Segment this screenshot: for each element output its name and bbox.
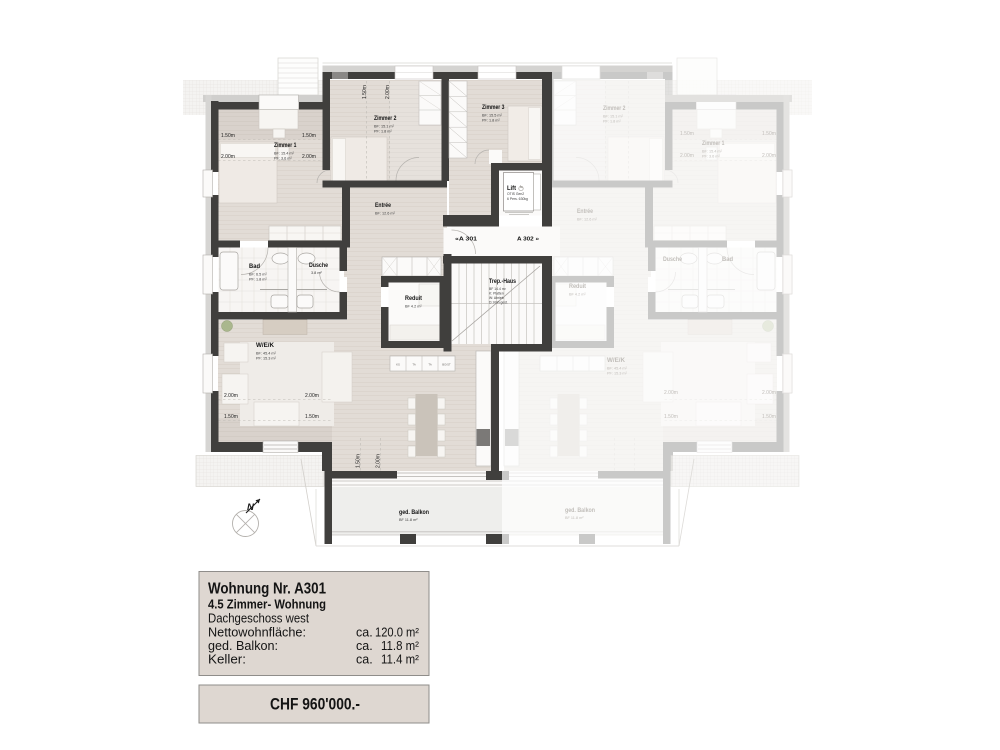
svg-text:4.5 Zimmer- Wohnung: 4.5 Zimmer- Wohnung bbox=[208, 597, 326, 612]
svg-text:PF: 1.8 m²: PF: 1.8 m² bbox=[603, 120, 621, 124]
svg-text:2.00m: 2.00m bbox=[302, 154, 316, 160]
svg-text:2.00m: 2.00m bbox=[305, 393, 319, 399]
svg-text:ged. Balkon:: ged. Balkon: bbox=[208, 639, 278, 653]
svg-text:1.50m: 1.50m bbox=[362, 85, 368, 99]
svg-text:Entrée: Entrée bbox=[577, 208, 593, 215]
svg-text:PF: 15.3 m²: PF: 15.3 m² bbox=[607, 372, 628, 376]
svg-text:BF: 15.4 m²: BF: 15.4 m² bbox=[274, 152, 295, 156]
svg-text:Bad: Bad bbox=[249, 263, 260, 270]
svg-text:W/E/K: W/E/K bbox=[607, 357, 625, 364]
svg-text:3.8 m²: 3.8 m² bbox=[311, 271, 322, 275]
svg-text:Zimmer 1: Zimmer 1 bbox=[702, 140, 725, 147]
svg-text:BO/ST: BO/ST bbox=[442, 363, 451, 367]
svg-text:1.50m: 1.50m bbox=[305, 414, 319, 420]
svg-text:2.00m: 2.00m bbox=[221, 154, 235, 160]
svg-text:D: Roh gest.: D: Roh gest. bbox=[489, 301, 508, 305]
svg-text:Zimmer 1: Zimmer 1 bbox=[274, 142, 297, 149]
svg-text:ca.: ca. bbox=[356, 639, 373, 653]
svg-text:Dusche: Dusche bbox=[309, 262, 328, 269]
svg-text:1.50m: 1.50m bbox=[762, 131, 776, 137]
svg-text:6 Pers. 630kg: 6 Pers. 630kg bbox=[507, 197, 528, 201]
svg-text:TA: TA bbox=[428, 363, 432, 367]
svg-text:Keller:: Keller: bbox=[208, 653, 246, 667]
svg-text:BF 4.2 m²: BF 4.2 m² bbox=[405, 305, 422, 309]
svg-text:2.00m: 2.00m bbox=[680, 153, 694, 159]
svg-text:1.50m: 1.50m bbox=[356, 454, 362, 468]
svg-text:1.50m: 1.50m bbox=[221, 133, 235, 139]
svg-text:Nettowohnfläche:: Nettowohnfläche: bbox=[208, 626, 306, 640]
svg-text:BF 11.8 m²: BF 11.8 m² bbox=[399, 518, 418, 522]
svg-text:PF: 1.8 m²: PF: 1.8 m² bbox=[374, 130, 392, 134]
svg-text:ca.: ca. bbox=[356, 653, 373, 667]
svg-text:PF: 3.6 m²: PF: 3.6 m² bbox=[702, 155, 720, 159]
svg-text:Wohnung Nr. A301: Wohnung Nr. A301 bbox=[208, 581, 326, 598]
svg-text:PF: 15.3 m²: PF: 15.3 m² bbox=[256, 357, 277, 361]
svg-text:TA: TA bbox=[412, 363, 416, 367]
svg-text:2.00m: 2.00m bbox=[664, 390, 678, 396]
svg-text:Bad: Bad bbox=[722, 256, 733, 263]
svg-text:2.00m: 2.00m bbox=[762, 153, 776, 159]
svg-text:BF: 15.4 m²: BF: 15.4 m² bbox=[702, 150, 723, 154]
svg-text:W: Abrieb: W: Abrieb bbox=[489, 296, 504, 300]
svg-text:2.00m: 2.00m bbox=[224, 393, 238, 399]
svg-text:W/E/K: W/E/K bbox=[256, 342, 274, 349]
svg-text:1.50m: 1.50m bbox=[762, 414, 776, 420]
svg-text:BF: 12.6 m²: BF: 12.6 m² bbox=[375, 212, 396, 216]
svg-text:2.00m: 2.00m bbox=[762, 390, 776, 396]
svg-text:Dusche: Dusche bbox=[663, 256, 682, 263]
svg-text:BF: 15.1 m²: BF: 15.1 m² bbox=[603, 115, 624, 119]
svg-text:Reduit: Reduit bbox=[569, 283, 587, 290]
svg-text:«A 301: «A 301 bbox=[455, 237, 478, 243]
svg-text:A 302 »: A 302 » bbox=[517, 237, 539, 243]
svg-text:Lift: Lift bbox=[507, 185, 517, 192]
svg-text:BF: 15.5 m²: BF: 15.5 m² bbox=[482, 114, 503, 118]
svg-text:BF: 15.1 m²: BF: 15.1 m² bbox=[374, 125, 395, 129]
svg-text:KS: KS bbox=[396, 363, 400, 367]
svg-text:CHF 960'000.-: CHF 960'000.- bbox=[270, 696, 360, 714]
svg-text:BF 4.2 m²: BF 4.2 m² bbox=[569, 293, 586, 297]
svg-text:BF: 6.5 m²: BF: 6.5 m² bbox=[249, 273, 267, 277]
svg-text:Reduit: Reduit bbox=[405, 295, 423, 302]
svg-text:11.8 m²: 11.8 m² bbox=[381, 639, 419, 653]
svg-text:Zimmer 2: Zimmer 2 bbox=[374, 115, 397, 122]
svg-text:1.50m: 1.50m bbox=[302, 133, 316, 139]
svg-text:1.50m: 1.50m bbox=[224, 414, 238, 420]
svg-text:Zimmer 2: Zimmer 2 bbox=[603, 105, 626, 112]
svg-text:N: N bbox=[247, 502, 255, 513]
svg-text:BF: 12.6 m²: BF: 12.6 m² bbox=[577, 218, 598, 222]
svg-text:PF: 1.8 m²: PF: 1.8 m² bbox=[249, 278, 267, 282]
svg-text:Zimmer 3: Zimmer 3 bbox=[482, 104, 505, 111]
svg-text:ged. Balkon: ged. Balkon bbox=[565, 507, 595, 514]
svg-text:ca.: ca. bbox=[356, 626, 373, 640]
svg-text:Dachgeschoss west: Dachgeschoss west bbox=[208, 612, 309, 626]
svg-text:PF: 3.6 m²: PF: 3.6 m² bbox=[274, 157, 292, 161]
svg-text:2.00m: 2.00m bbox=[376, 454, 382, 468]
svg-text:Entrée: Entrée bbox=[375, 202, 391, 209]
svg-text:BF: 45.4 m²: BF: 45.4 m² bbox=[607, 367, 628, 371]
svg-text:1.50m: 1.50m bbox=[664, 414, 678, 420]
svg-text:1.50m: 1.50m bbox=[680, 131, 694, 137]
svg-text:K: Platten: K: Platten bbox=[489, 292, 504, 296]
svg-text:11.4 m²: 11.4 m² bbox=[381, 653, 419, 667]
svg-text:BF 14.4 m²: BF 14.4 m² bbox=[489, 287, 507, 291]
svg-text:Trep.-Haus: Trep.-Haus bbox=[489, 278, 516, 285]
svg-text:OTIS Gen2: OTIS Gen2 bbox=[507, 192, 524, 196]
svg-text:BF 11.8 m²: BF 11.8 m² bbox=[565, 516, 584, 520]
svg-text:BF: 45.4 m²: BF: 45.4 m² bbox=[256, 352, 277, 356]
svg-text:2.00m: 2.00m bbox=[385, 85, 391, 99]
svg-text:ged. Balkon: ged. Balkon bbox=[399, 509, 429, 516]
svg-text:120.0 m²: 120.0 m² bbox=[375, 626, 419, 640]
svg-text:PF: 1.8 m²: PF: 1.8 m² bbox=[482, 119, 500, 123]
